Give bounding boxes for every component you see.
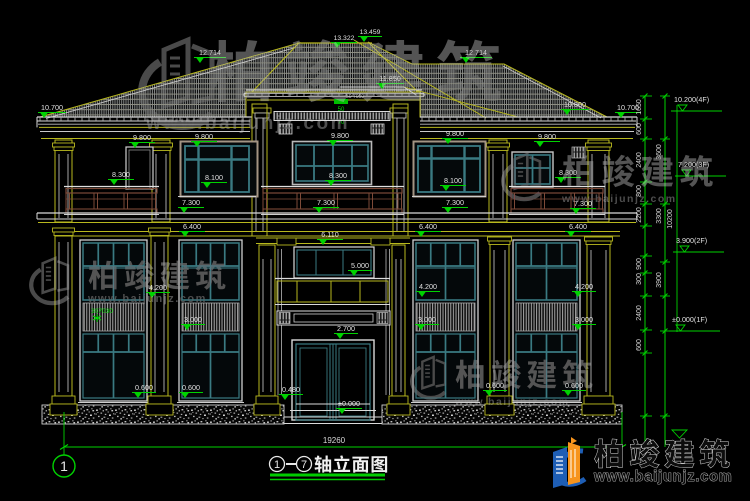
svg-text:3.000: 3.000 [184, 315, 202, 324]
svg-text:4.200: 4.200 [419, 282, 437, 291]
svg-text:6.400: 6.400 [569, 222, 587, 231]
svg-text:6.400: 6.400 [183, 222, 201, 231]
svg-text:8.300: 8.300 [112, 170, 130, 179]
svg-text:4.200: 4.200 [575, 282, 593, 291]
svg-text:7.300: 7.300 [317, 198, 335, 207]
svg-text:19260: 19260 [323, 436, 346, 445]
svg-text:10.700: 10.700 [41, 103, 63, 112]
svg-text:1: 1 [274, 459, 280, 471]
svg-text:9.800: 9.800 [538, 132, 556, 141]
svg-text:8.100: 8.100 [444, 176, 462, 185]
svg-text:10.200(4F): 10.200(4F) [674, 95, 709, 104]
svg-text:900: 900 [636, 258, 643, 270]
svg-text:1: 1 [60, 458, 68, 474]
svg-text:50 7050: 50 7050 [346, 94, 364, 100]
svg-text:1650: 1650 [636, 99, 643, 115]
svg-text:www.baijunjz.com: www.baijunjz.com [593, 469, 733, 485]
svg-text:307030: 307030 [91, 308, 113, 315]
svg-text:2400: 2400 [636, 305, 643, 321]
svg-text:8.100: 8.100 [205, 173, 223, 182]
svg-text:±0.000: ±0.000 [338, 399, 360, 408]
svg-text:www.baijunjz.com: www.baijunjz.com [145, 113, 350, 134]
svg-text:3300: 3300 [656, 208, 663, 224]
svg-text:7.300: 7.300 [182, 198, 200, 207]
svg-text:2.700: 2.700 [337, 324, 355, 333]
svg-text:3900: 3900 [656, 272, 663, 288]
svg-text:13.322: 13.322 [334, 35, 355, 42]
svg-text:±0.000(1F): ±0.000(1F) [672, 315, 707, 324]
svg-text:7.300: 7.300 [446, 198, 464, 207]
svg-text:6.400: 6.400 [419, 222, 437, 231]
svg-text:0.600: 0.600 [182, 383, 200, 392]
svg-text:0.600: 0.600 [135, 383, 153, 392]
svg-text:3.900(2F): 3.900(2F) [676, 236, 707, 245]
svg-text:10200: 10200 [667, 209, 674, 229]
svg-text:13.459: 13.459 [360, 29, 381, 36]
svg-text:5.000: 5.000 [351, 261, 369, 270]
svg-text:9.800: 9.800 [133, 133, 151, 142]
svg-text:0.480: 0.480 [282, 385, 300, 394]
svg-text:www.baijunjz.com: www.baijunjz.com [454, 396, 570, 408]
svg-text:8.300: 8.300 [329, 171, 347, 180]
svg-text:9.800: 9.800 [446, 129, 464, 138]
svg-text:2200: 2200 [636, 207, 643, 223]
svg-text:10.800: 10.800 [564, 100, 586, 109]
svg-text:300: 300 [636, 273, 643, 285]
svg-text:600: 600 [636, 123, 643, 135]
svg-text:3.000: 3.000 [418, 315, 436, 324]
svg-text:6.110: 6.110 [321, 230, 338, 239]
svg-text:7: 7 [301, 459, 307, 471]
svg-text:3.000: 3.000 [575, 315, 593, 324]
svg-text:2400: 2400 [636, 152, 643, 168]
svg-text:600: 600 [636, 339, 643, 351]
svg-text:www.baijunjz.com: www.baijunjz.com [561, 193, 677, 205]
svg-text:www.baijunjz.com: www.baijunjz.com [87, 293, 207, 305]
